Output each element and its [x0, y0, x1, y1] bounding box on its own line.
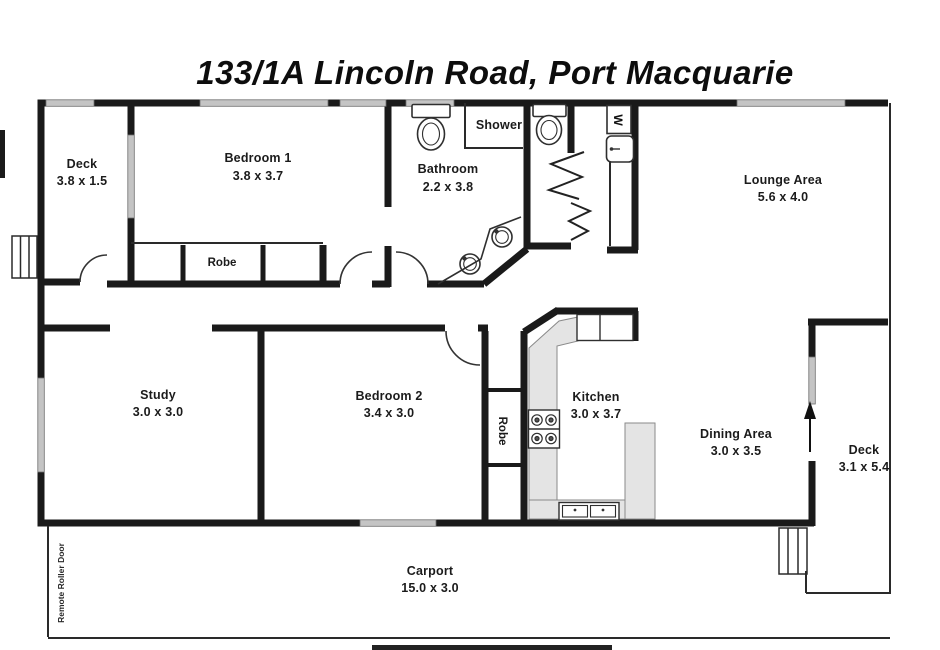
stove-burner-dot — [549, 418, 553, 422]
pantry — [577, 315, 633, 341]
stove-burner-dot — [535, 437, 539, 441]
toilet-tank — [412, 105, 450, 118]
sink-tap-dot — [574, 509, 577, 512]
washer-label: W — [611, 114, 625, 126]
kitchen-sink-icon — [559, 503, 619, 521]
room-name: Deck — [849, 443, 880, 457]
page-background — [0, 0, 940, 650]
room-dims: 3.8 x 1.5 — [57, 174, 107, 188]
room-label-robe1: Robe — [208, 257, 237, 269]
room-dims: 15.0 x 3.0 — [401, 581, 459, 595]
room-label-robe2: Robe — [496, 417, 508, 446]
room-name: Carport — [407, 564, 454, 578]
room-dims: 3.4 x 3.0 — [364, 406, 414, 420]
laundry-tap-dot — [610, 147, 614, 151]
room-name: Bathroom — [418, 162, 479, 176]
room-name: Study — [140, 388, 176, 402]
scan-artifact-bar — [372, 645, 612, 650]
toilet-tank — [533, 105, 566, 117]
room-name: Deck — [67, 157, 98, 171]
room-name: Dining Area — [700, 427, 773, 441]
stove-burner-dot — [535, 418, 539, 422]
room-dims: 3.8 x 3.7 — [233, 169, 283, 183]
stove-icon — [529, 410, 560, 448]
room-dims: 3.0 x 3.5 — [711, 444, 761, 458]
room-dims: 2.2 x 3.8 — [423, 180, 473, 194]
room-name: Bedroom 1 — [224, 151, 291, 165]
room-dims: 5.6 x 4.0 — [758, 190, 808, 204]
pantry-cabinet — [577, 315, 633, 341]
basin-tap-dot — [494, 229, 498, 233]
toilet-bowl-inner — [541, 121, 557, 140]
sink-tap-dot — [602, 509, 605, 512]
window-study-left — [38, 378, 45, 472]
floor-plan-page: 133/1A Lincoln Road, Port Macquarie — [0, 0, 940, 650]
room-name: Lounge Area — [744, 173, 823, 187]
room-name: Kitchen — [572, 390, 619, 404]
floor-plan-drawing: 133/1A Lincoln Road, Port Macquarie — [0, 0, 940, 650]
window-deck-bedroom1 — [128, 135, 135, 218]
plan-title: 133/1A Lincoln Road, Port Macquarie — [196, 54, 794, 91]
window-lounge-top — [737, 100, 845, 107]
window-bedroom1-top-b — [340, 100, 386, 107]
room-dims: 3.0 x 3.0 — [133, 405, 183, 419]
window-deck-left-top — [46, 100, 94, 107]
window-bedroom2-bottom — [360, 520, 436, 527]
window-dining-deck-slider — [809, 357, 816, 404]
window-bedroom1-top-a — [200, 100, 328, 107]
toilet-bowl-inner — [423, 123, 440, 145]
room-dims: 3.1 x 5.4 — [839, 460, 889, 474]
roller-door-label: Remote Roller Door — [56, 542, 66, 623]
room-name: Bedroom 2 — [355, 389, 422, 403]
room-dims: 3.0 x 3.7 — [571, 407, 621, 421]
basin-tap-dot — [462, 256, 466, 260]
room-label-shower: Shower — [476, 118, 522, 132]
stove-burner-dot — [549, 437, 553, 441]
scan-artifact-left — [0, 130, 5, 178]
kitchen-island-bench — [625, 423, 655, 519]
